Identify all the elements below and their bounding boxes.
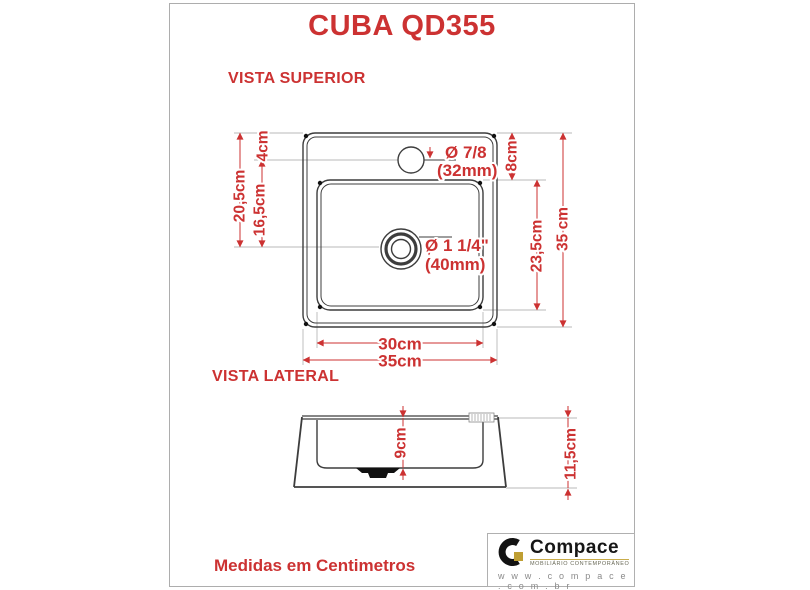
brand-block: Compace MOBILIÁRIO CONTEMPORÂNEO w w w .… xyxy=(487,533,635,587)
dim-side-total-height: 11,5cm xyxy=(563,428,580,480)
dim-faucet-hole-diameter-mm: (32mm) xyxy=(437,161,497,180)
dim-drain-diameter: Ø 1 1/4" xyxy=(425,236,489,255)
dim-total-width: 35cm xyxy=(378,352,421,371)
compace-logo-icon xyxy=(498,538,526,566)
dim-basin-height: 23,5cm xyxy=(529,220,546,273)
dim-rim-to-basin: 8cm xyxy=(504,140,521,171)
left-wall xyxy=(294,417,302,487)
drain xyxy=(381,229,421,269)
brand-tagline: MOBILIÁRIO CONTEMPORÂNEO xyxy=(530,559,629,567)
dim-total-height: 35 cm xyxy=(555,207,572,251)
dim-rim-to-hole: 4cm xyxy=(255,130,272,161)
dim-rim-to-drain: 20,5cm xyxy=(232,170,249,223)
right-wall xyxy=(498,417,506,487)
faucet-hole-section xyxy=(469,413,494,422)
dim-drain-diameter-mm: (40mm) xyxy=(425,255,485,274)
dim-basin-depth: 9cm xyxy=(393,427,410,458)
dim-hole-to-drain: 16,5cm xyxy=(252,184,269,237)
drain-fitting xyxy=(356,468,400,478)
technical-drawing: 20,5cm 16,5cm 4cm Ø 7/8 (32mm) 8cm 23,5c… xyxy=(0,0,810,590)
dim-faucet-hole-diameter: Ø 7/8 xyxy=(445,143,487,162)
brand-website: w w w . c o m p a c e . c o m . b r xyxy=(498,571,634,590)
faucet-hole xyxy=(398,147,424,173)
brand-name: Compace xyxy=(530,538,629,558)
